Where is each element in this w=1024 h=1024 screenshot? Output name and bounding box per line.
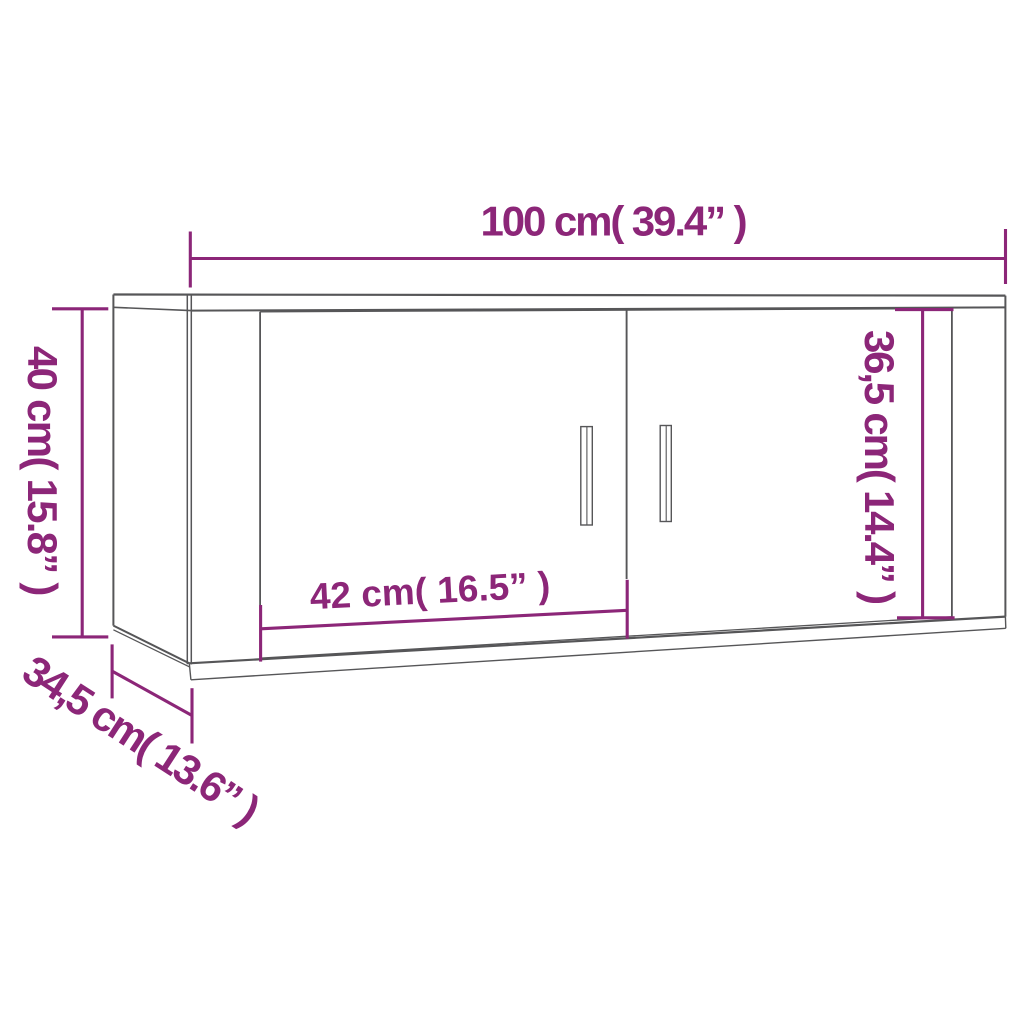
svg-text:40 cm( 15.8” ): 40 cm( 15.8” ) <box>19 346 66 595</box>
svg-text:100 cm( 39.4” ): 100 cm( 39.4” ) <box>481 197 746 244</box>
svg-text:36,5 cm( 14.4” ): 36,5 cm( 14.4” ) <box>856 330 903 603</box>
